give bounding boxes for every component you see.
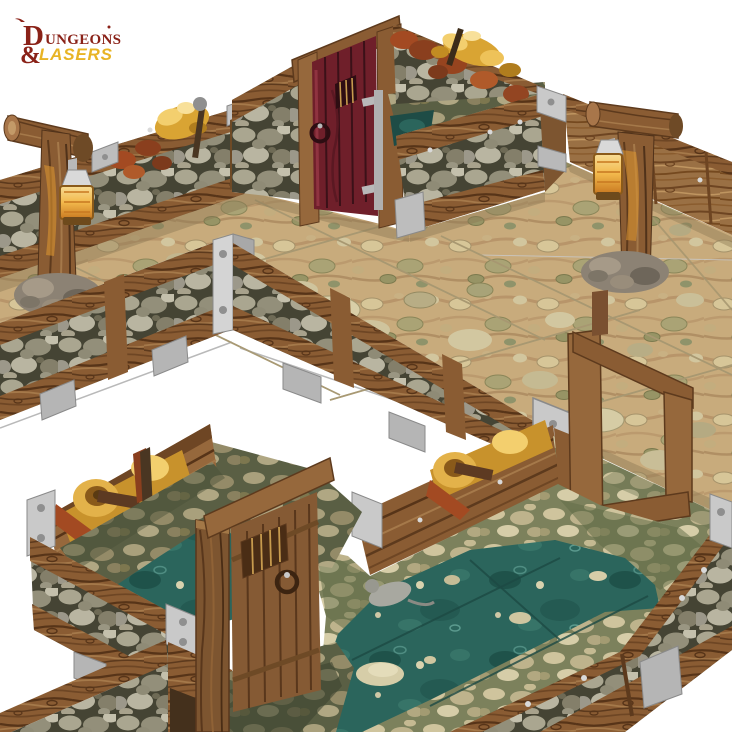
svg-text:&: & — [20, 42, 41, 69]
svg-text:LASERS: LASERS — [39, 45, 113, 64]
